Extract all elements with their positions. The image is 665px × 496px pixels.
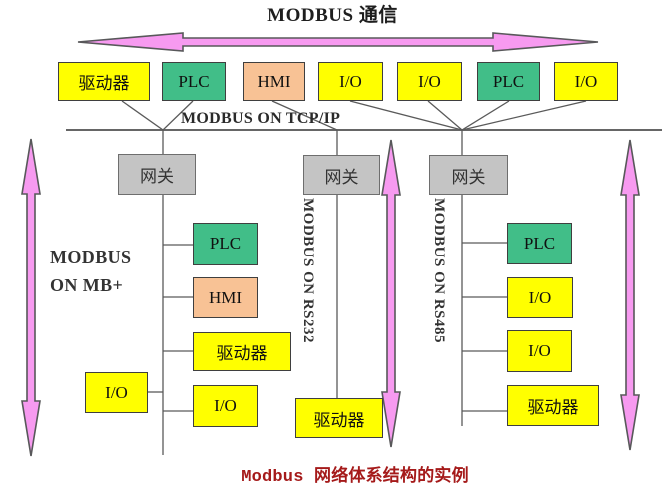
- tcpip-bus-label: MODBUS ON TCP/IP: [181, 110, 340, 128]
- top-device-io-3: I/O: [554, 62, 618, 101]
- gateway-3: 网关: [429, 155, 508, 195]
- connector-drive-to-bus: [122, 101, 163, 130]
- gateway-label: 网关: [452, 163, 486, 188]
- top-device-plc-2: PLC: [477, 62, 540, 101]
- mbplus-branch-label-line2: ON MB+: [50, 271, 131, 299]
- connector-io3-to-bus: [462, 101, 586, 130]
- mbplus-branch-label-line1: MODBUS: [50, 243, 131, 271]
- rs232-device-drive: 驱动器: [295, 398, 383, 438]
- top-device-hmi: HMI: [243, 62, 305, 101]
- mbplus-device-drive: 驱动器: [193, 332, 291, 371]
- device-label: I/O: [575, 72, 598, 92]
- rs485-device-drive: 驱动器: [507, 385, 599, 426]
- middle-vertical-double-arrow-icon: [382, 140, 400, 447]
- device-label: I/O: [528, 341, 551, 361]
- device-label: I/O: [339, 72, 362, 92]
- modbus-network-diagram: MODBUS 通信 驱动器 PLC HMI I/O I/O PLC I/O MO…: [0, 0, 665, 496]
- device-label: I/O: [529, 288, 552, 308]
- device-label: 驱动器: [79, 69, 130, 94]
- rs485-device-io-2: I/O: [507, 330, 572, 372]
- top-device-drive: 驱动器: [58, 62, 150, 101]
- mbplus-device-io-right: I/O: [193, 385, 258, 427]
- gateway-label: 网关: [140, 162, 174, 187]
- gateway-1: 网关: [118, 154, 196, 195]
- mbplus-branch-label: MODBUS ON MB+: [50, 243, 131, 299]
- diagram-title: MODBUS 通信: [0, 0, 665, 27]
- gateway-label: 网关: [325, 163, 359, 188]
- device-label: 驱动器: [528, 393, 579, 418]
- mbplus-device-hmi: HMI: [193, 277, 258, 318]
- device-label: HMI: [209, 288, 242, 308]
- rs485-branch-label: MODBUS ON RS485: [430, 198, 447, 408]
- right-vertical-double-arrow-icon: [621, 140, 639, 450]
- rs485-device-plc: PLC: [507, 223, 572, 264]
- horizontal-double-arrow-icon: [78, 33, 598, 51]
- device-label: PLC: [524, 234, 555, 254]
- rs485-device-io-1: I/O: [507, 277, 573, 318]
- top-device-io-1: I/O: [318, 62, 383, 101]
- device-label: PLC: [210, 234, 241, 254]
- device-label: 驱动器: [314, 406, 365, 431]
- device-label: HMI: [257, 72, 290, 92]
- device-label: PLC: [178, 72, 209, 92]
- connector-plc2-to-bus: [462, 101, 509, 130]
- diagram-caption: Modbus 网络体系结构的实例: [130, 461, 580, 487]
- top-device-plc-1: PLC: [162, 62, 226, 101]
- device-label: PLC: [493, 72, 524, 92]
- device-label: I/O: [214, 396, 237, 416]
- gateway-2: 网关: [303, 155, 380, 195]
- device-label: I/O: [418, 72, 441, 92]
- rs232-branch-label: MODBUS ON RS232: [299, 198, 316, 408]
- top-device-io-2: I/O: [397, 62, 462, 101]
- mbplus-device-io-left: I/O: [85, 372, 148, 413]
- device-label: I/O: [105, 383, 128, 403]
- mbplus-device-plc: PLC: [193, 223, 258, 265]
- device-label: 驱动器: [217, 339, 268, 364]
- left-vertical-double-arrow-icon: [22, 139, 40, 456]
